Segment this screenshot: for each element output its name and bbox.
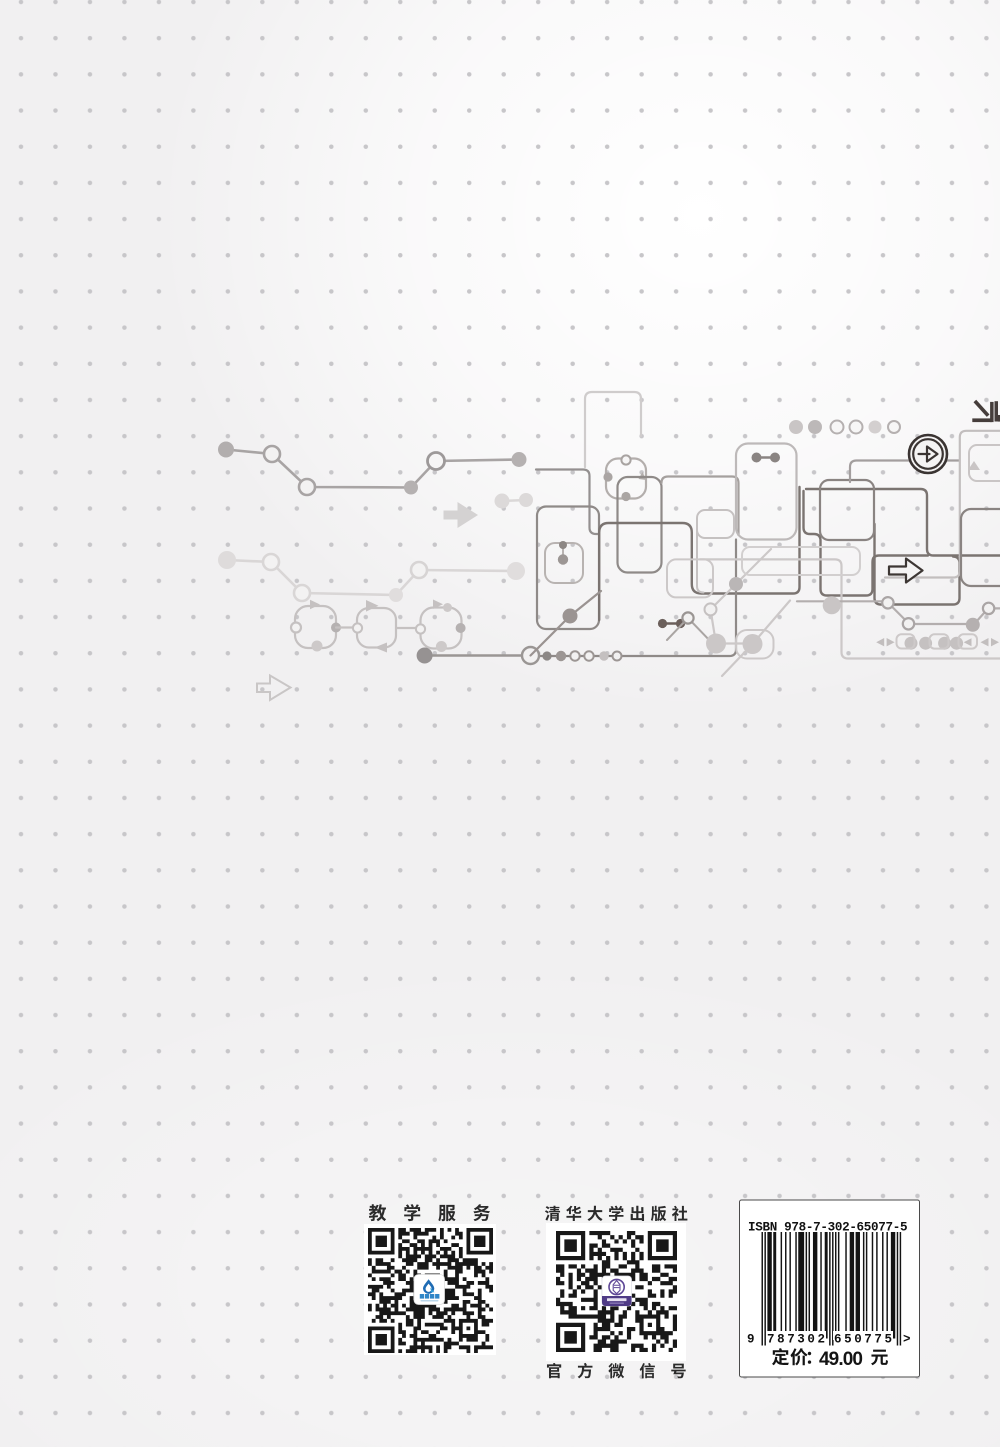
svg-text:>: > (903, 1333, 911, 1347)
svg-text:650775: 650775 (834, 1333, 895, 1347)
svg-text:9: 9 (747, 1333, 755, 1347)
svg-text:49.00: 49.00 (819, 1349, 862, 1370)
svg-text:787302: 787302 (767, 1333, 828, 1347)
